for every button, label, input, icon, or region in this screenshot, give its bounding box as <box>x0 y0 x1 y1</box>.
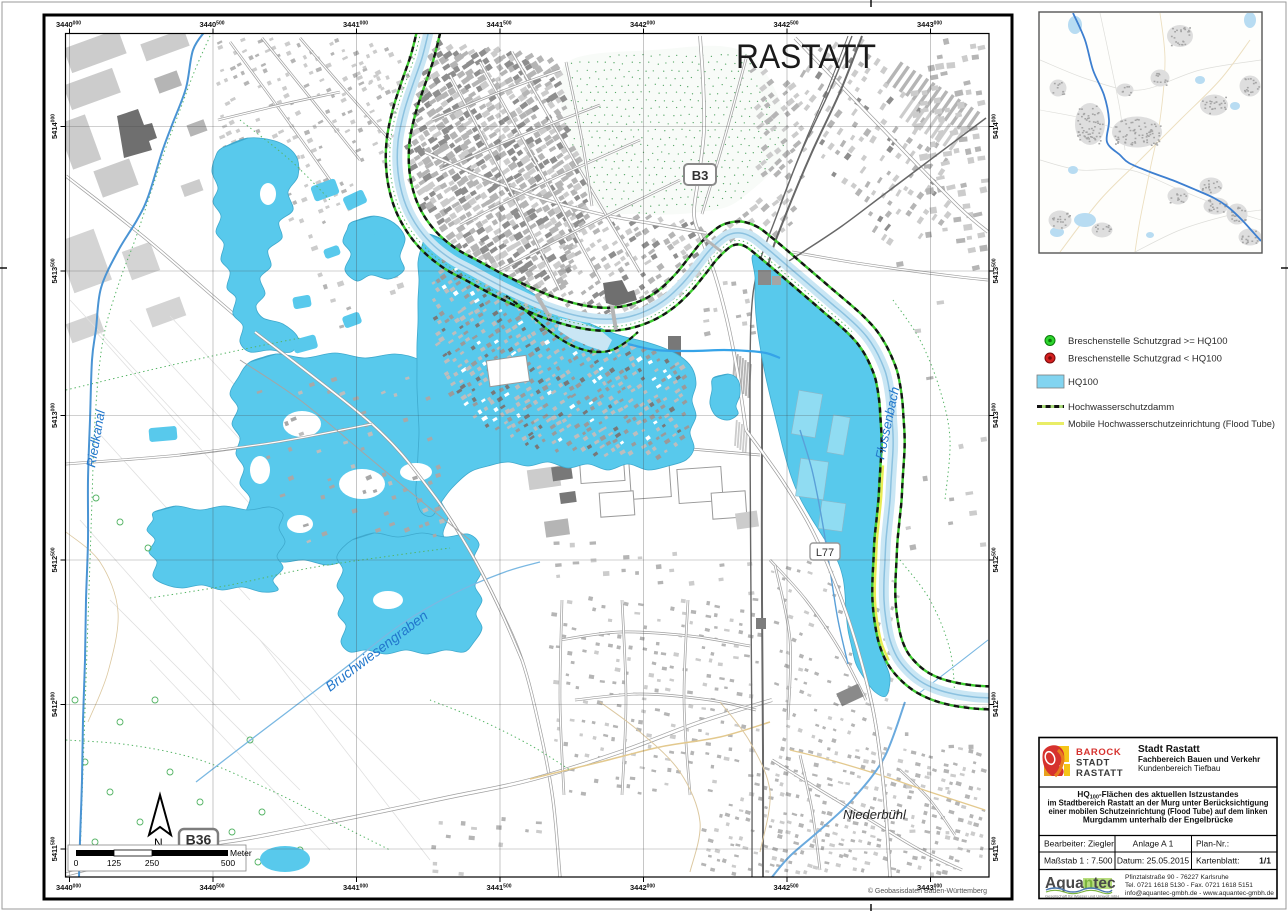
svg-text:BAROCK: BAROCK <box>1076 747 1121 758</box>
svg-text:info@aquantec-gmbh.de - www.: info@aquantec-gmbh.de - www.aquantec-gmb… <box>1125 890 1274 897</box>
svg-text:Pfinztalstraße 90 - 76227 Ka: Pfinztalstraße 90 - 76227 Karlsruhe <box>1125 874 1229 881</box>
svg-text:Niederbühl: Niederbühl <box>843 807 907 822</box>
svg-text:Datum: 25.05.2015: Datum: 25.05.2015 <box>1117 856 1190 866</box>
svg-text:Aquantec: Aquantec <box>1045 875 1116 892</box>
svg-text:RASTATT: RASTATT <box>1076 768 1123 779</box>
svg-text:Tel. 0721 1618 5130 - Fax. 0: Tel. 0721 1618 5130 - Fax. 0721 1618 515… <box>1125 882 1253 889</box>
svg-text:Anlage A 1: Anlage A 1 <box>1133 839 1174 849</box>
svg-text:125: 125 <box>107 858 121 868</box>
svg-text:Bearbeiter: Ziegler: Bearbeiter: Ziegler <box>1044 839 1114 849</box>
svg-text:Murgdamm unterhalb der Engelbr: Murgdamm unterhalb der Engelbrücke <box>1083 816 1234 825</box>
svg-text:500: 500 <box>221 858 235 868</box>
svg-text:Meter: Meter <box>230 848 252 858</box>
svg-text:Breschenstelle Schutzgrad < HQ: Breschenstelle Schutzgrad < HQ100 <box>1068 354 1222 365</box>
svg-text:STADT: STADT <box>1076 758 1110 769</box>
svg-text:250: 250 <box>145 858 159 868</box>
svg-text:1/1: 1/1 <box>1259 856 1271 866</box>
svg-text:Hochwasserschutzdamm: Hochwasserschutzdamm <box>1068 402 1174 413</box>
svg-text:Mobile Hochwasserschutzeinrich: Mobile Hochwasserschutzeinrichtung (Floo… <box>1068 419 1275 430</box>
svg-text:B3: B3 <box>692 168 709 183</box>
svg-text:L77: L77 <box>816 547 834 559</box>
svg-text:Maßstab 1 : 7.500: Maßstab 1 : 7.500 <box>1044 856 1113 866</box>
svg-text:Gesellschaft für Wasser und Um: Gesellschaft für Wasser und Umwelt mbH <box>1045 894 1119 899</box>
svg-text:HQ100: HQ100 <box>1068 377 1098 388</box>
svg-text:Fachbereich Bauen und Verkehr: Fachbereich Bauen und Verkehr <box>1138 755 1260 764</box>
svg-text:Kundenbereich Tiefbau: Kundenbereich Tiefbau <box>1138 764 1220 773</box>
svg-text:0: 0 <box>74 858 79 868</box>
svg-text:RASTATT: RASTATT <box>736 38 876 76</box>
svg-text:Breschenstelle Schutzgrad >= H: Breschenstelle Schutzgrad >= HQ100 <box>1068 336 1227 347</box>
svg-text:Plan-Nr.:: Plan-Nr.: <box>1196 839 1229 849</box>
svg-text:Kartenblatt:: Kartenblatt: <box>1196 856 1239 866</box>
svg-text:Stadt Rastatt: Stadt Rastatt <box>1138 744 1200 755</box>
